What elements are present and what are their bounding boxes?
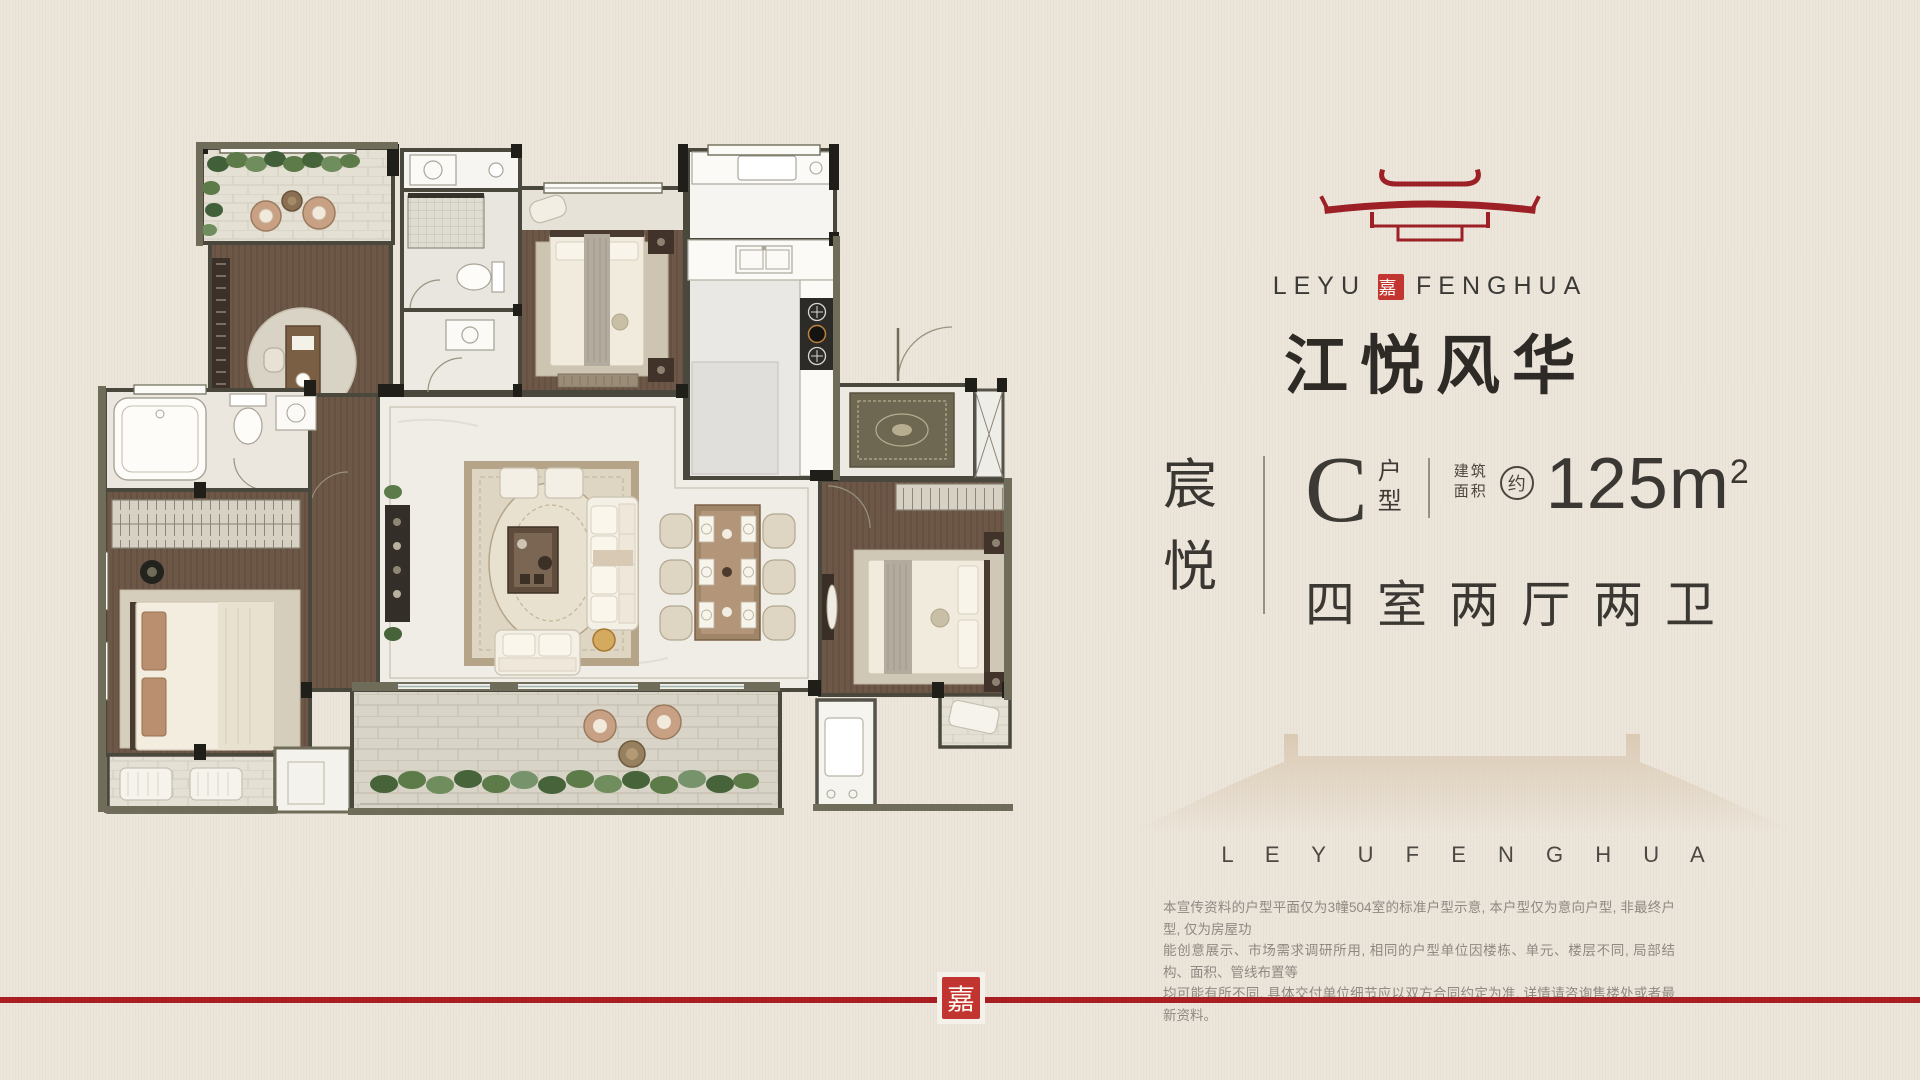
unit-type-label: 户 型 xyxy=(1378,460,1402,514)
room-bathroom-2 xyxy=(402,190,520,310)
footer-seal-icon: 嘉 xyxy=(942,977,980,1019)
disclaimer-line: 均可能有所不同, 具体交付单位细节应以双方合同约定为准, 详情请咨询售楼处或者最… xyxy=(1163,983,1675,1026)
plant xyxy=(384,485,402,499)
area-value: 125m2 xyxy=(1546,452,1750,517)
stove xyxy=(800,298,835,370)
sliding-window-wall xyxy=(352,682,780,691)
brand-latin-left: LEYU xyxy=(1273,272,1366,301)
vertical-divider xyxy=(1428,458,1430,518)
bench xyxy=(558,374,638,387)
unit-info-block: 宸 悦 C 户 型 建筑 面积 约 125m2 四室两厅两卫 xyxy=(1163,452,1763,637)
entry-foyer xyxy=(835,327,975,478)
bed xyxy=(868,560,990,674)
terrace-table xyxy=(619,741,645,767)
sofa xyxy=(587,497,638,630)
washer xyxy=(738,156,796,180)
equipment-platform xyxy=(275,748,350,812)
watermark-block: L E Y U F E N G H U A xyxy=(1128,722,1798,868)
room-master-bath xyxy=(105,385,316,490)
roof-silhouette-watermark xyxy=(1128,722,1798,834)
room-balcony-top-left xyxy=(201,143,393,243)
mirror xyxy=(827,585,837,629)
disclaimer-line: 本宣传资料的户型平面仅为3幢504室的标准户型示意, 本户型仅为意向户型, 非最… xyxy=(1163,897,1675,940)
window xyxy=(708,145,820,155)
entry-rug xyxy=(850,393,954,467)
room-hallway-vanity xyxy=(402,310,520,392)
project-name-char: 悦 xyxy=(1163,540,1217,594)
desk-chair xyxy=(264,348,284,372)
balcony-bottom-left xyxy=(108,755,275,812)
water-heater xyxy=(825,718,863,776)
bed xyxy=(550,230,644,366)
plant xyxy=(384,627,402,641)
brand-chinese-name: 江悦风华 xyxy=(1195,315,1665,407)
layout-description: 四室两厅两卫 xyxy=(1305,565,1763,637)
disclaimer-line: 能创意展示、市场需求调研所用, 相同的户型单位因楼栋、单元、楼层不同, 局部结构… xyxy=(1163,940,1675,983)
corridor-left xyxy=(310,395,378,690)
brand-block: LEYU 嘉 FENGHUA 江悦风华 xyxy=(1195,168,1665,407)
disclaimer: 本宣传资料的户型平面仅为3幢504室的标准户型示意, 本户型仅为意向户型, 非最… xyxy=(1163,897,1675,1026)
dining-chair xyxy=(660,606,692,640)
terrace-chair xyxy=(647,705,681,739)
balcony-chair xyxy=(251,201,281,231)
room-bedroom-3 xyxy=(820,480,1010,695)
toilet xyxy=(457,262,504,292)
window xyxy=(134,385,206,394)
area-label: 建筑 面积 xyxy=(1454,464,1488,499)
room-master-bedroom xyxy=(99,490,310,755)
wardrobe xyxy=(896,484,1004,510)
loveseat xyxy=(495,630,580,675)
approx-circle-badge: 约 xyxy=(1500,466,1534,500)
coffee-table xyxy=(508,527,558,593)
balcony-chair xyxy=(303,197,335,229)
dining-chair xyxy=(763,560,795,594)
armchair xyxy=(500,468,538,498)
brand-seal-icon: 嘉 xyxy=(1378,274,1404,300)
bathtub xyxy=(114,398,206,480)
floor-plan xyxy=(98,122,1038,822)
room-utility-bottom xyxy=(817,700,875,808)
bed xyxy=(130,602,274,750)
entry-door-arc xyxy=(898,327,952,381)
room-kitchen xyxy=(688,240,835,478)
dining-chair xyxy=(660,560,692,594)
poster-page: LEYU 嘉 FENGHUA 江悦风华 宸 悦 C 户 型 建筑 面积 xyxy=(0,0,1920,1080)
terrace xyxy=(352,690,780,812)
dining-chair xyxy=(660,514,692,548)
room-laundry-top-right xyxy=(688,145,835,240)
armchair xyxy=(545,468,583,498)
project-name-char: 宸 xyxy=(1163,458,1217,512)
floor-lamp xyxy=(593,629,615,651)
balcony-bottom-right xyxy=(940,695,1010,747)
shower xyxy=(408,196,484,248)
bath-sink xyxy=(276,396,316,430)
project-name-vertical: 宸 悦 xyxy=(1163,458,1217,637)
unit-letter: C xyxy=(1305,452,1368,529)
brand-latin-right: FENGHUA xyxy=(1416,272,1587,301)
dining-chair xyxy=(763,606,795,640)
roof-logo-icon xyxy=(1315,168,1545,246)
vertical-divider xyxy=(1263,456,1265,614)
tv-cabinet xyxy=(385,505,410,622)
island xyxy=(692,362,778,474)
brand-latin: LEYU 嘉 FENGHUA xyxy=(1195,272,1665,301)
shaft xyxy=(975,390,1003,478)
dining-chair xyxy=(763,514,795,548)
terrace-chair xyxy=(584,710,616,742)
room-utility-top xyxy=(402,150,520,190)
washer xyxy=(410,155,456,185)
watermark-text: L E Y U F E N G H U A xyxy=(1128,842,1798,868)
kitchen-sink xyxy=(736,246,792,274)
balcony-table xyxy=(282,191,302,211)
vanity-sink xyxy=(446,320,494,350)
dining-set xyxy=(660,505,795,640)
footer-seal-badge: 嘉 xyxy=(937,972,985,1024)
room-bedroom-2 xyxy=(520,183,685,392)
